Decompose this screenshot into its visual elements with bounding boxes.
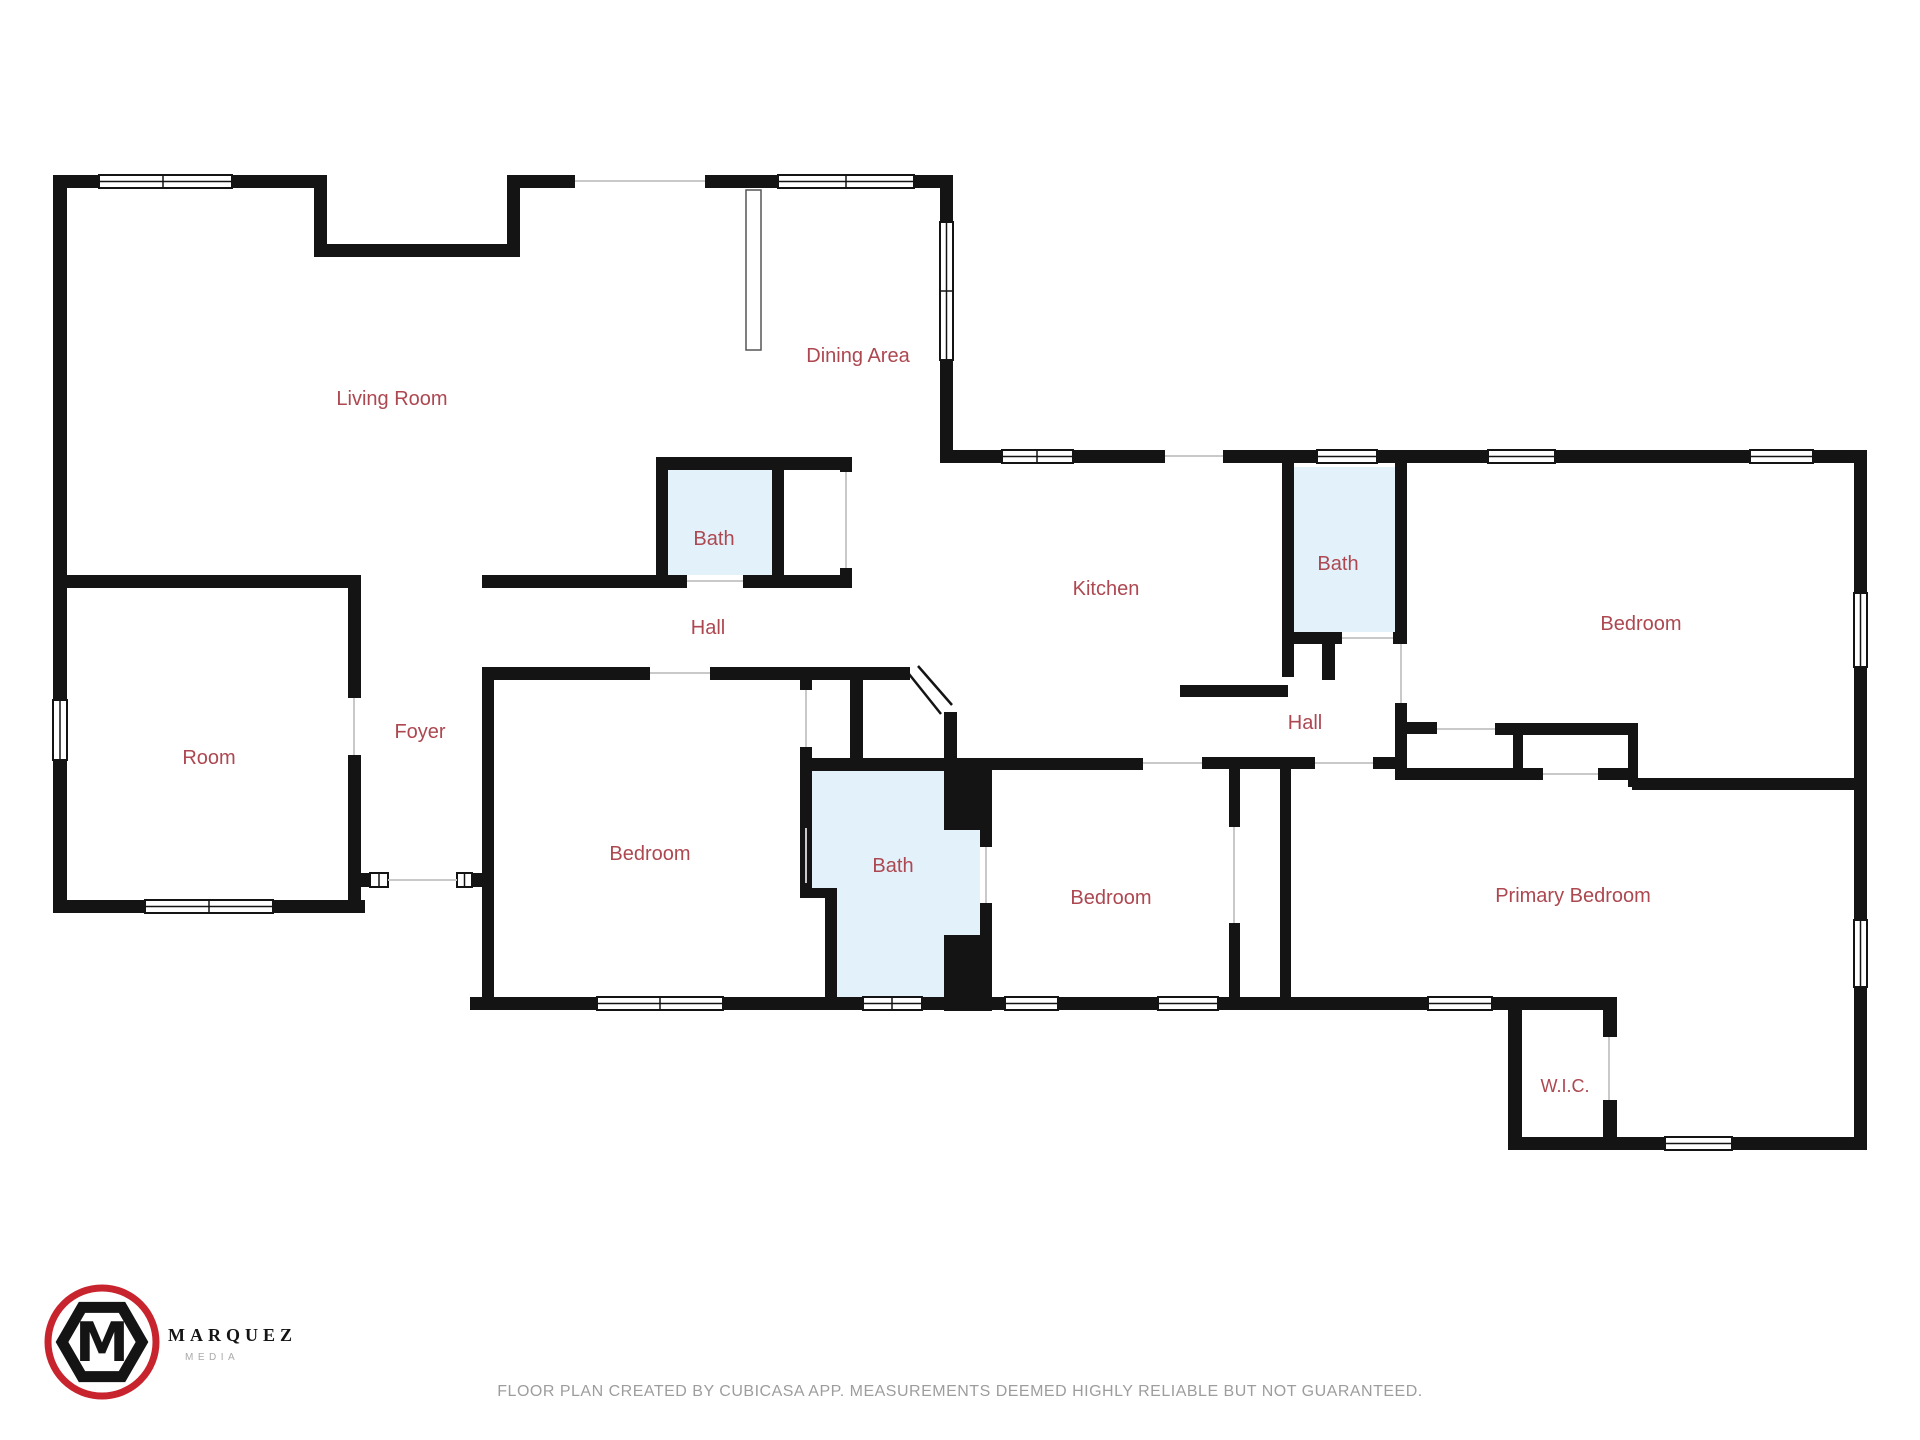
wall-segment: [1513, 735, 1523, 773]
room-label-hall-right: Hall: [1288, 712, 1322, 734]
window: [1750, 450, 1813, 463]
wall-segment: [840, 457, 852, 472]
disclaimer-text: FLOOR PLAN CREATED BY CUBICASA APP. MEAS…: [497, 1383, 1422, 1400]
wall-segment: [723, 997, 863, 1010]
room-label-wic: W.I.C.: [1541, 1076, 1590, 1096]
bath-middle-fill-right: [944, 830, 980, 935]
window: [1428, 997, 1492, 1010]
wall-segment: [800, 888, 837, 898]
wall-segment: [273, 900, 365, 913]
wall-segment: [1854, 987, 1867, 1150]
wall-segment: [482, 575, 687, 588]
window: [1665, 1137, 1732, 1150]
window: [1854, 593, 1867, 667]
window: [1002, 450, 1073, 463]
wall-segment: [361, 873, 370, 887]
wall-segment: [940, 175, 953, 222]
floor-plan-page: Living Room Dining Area Bath Hall Kitche…: [0, 0, 1920, 1440]
wall-segment: [1377, 450, 1488, 463]
wall-segment: [1282, 632, 1342, 644]
wall-segment: [850, 677, 863, 771]
wall-segment: [1632, 778, 1867, 790]
entry-sidelight: [457, 873, 472, 887]
wall-segment: [800, 758, 944, 771]
wall-segment: [940, 360, 953, 455]
wall-segment: [507, 175, 575, 188]
wall-segment: [470, 997, 597, 1010]
room-label-bath-middle: Bath: [872, 855, 913, 877]
wall-segment: [840, 568, 852, 588]
wall-segment: [348, 755, 361, 913]
wall-segment: [1218, 997, 1428, 1010]
room-label-bedroom-middle: Bedroom: [1070, 887, 1151, 909]
wall-segment: [1282, 463, 1294, 677]
wall-segment: [1400, 768, 1543, 780]
wall-segment: [944, 758, 1143, 770]
window: [99, 175, 232, 188]
wall-segment: [1732, 1137, 1867, 1150]
room-label-foyer: Foyer: [394, 721, 445, 743]
wall-segment: [1603, 997, 1617, 1037]
room-label-dining-area: Dining Area: [806, 345, 910, 367]
wall-segment: [1508, 1137, 1665, 1150]
window: [940, 222, 953, 360]
wall-segment: [1229, 923, 1240, 997]
wall-segment: [1495, 723, 1637, 735]
wall-segment: [743, 575, 852, 588]
bath-hall-fill: [668, 470, 772, 575]
window: [1005, 997, 1058, 1010]
window: [1158, 997, 1218, 1010]
wall-segment: [1603, 1100, 1617, 1137]
window: [597, 997, 723, 1010]
wall-segment: [1854, 667, 1867, 920]
wall-segment: [705, 175, 778, 188]
wall-segment: [314, 244, 520, 257]
room-label-room: Room: [182, 747, 235, 769]
wall-segment: [800, 677, 812, 690]
wall-segment: [53, 575, 361, 588]
wall-segment: [1322, 644, 1335, 680]
wall-segment: [980, 903, 992, 935]
bath-right-fill: [1294, 467, 1395, 632]
window: [53, 700, 67, 760]
bath-middle-fill-lower: [837, 888, 944, 998]
angled-door: [909, 666, 952, 714]
wall-segment: [940, 450, 1002, 463]
wall-segment: [944, 935, 992, 1011]
room-label-bath-hall: Bath: [693, 528, 734, 550]
wall-segment: [1492, 997, 1508, 1010]
window: [863, 997, 922, 1010]
window: [1317, 450, 1377, 463]
wall-segment: [53, 900, 145, 913]
wall-segment: [1854, 450, 1867, 593]
wall-segment: [1508, 1010, 1522, 1137]
wall-segment: [1555, 450, 1750, 463]
wall-segment: [825, 898, 837, 997]
wall-segment: [1180, 685, 1288, 697]
logo-brand-subtext: MEDIA: [185, 1352, 239, 1363]
wall-segment: [772, 470, 784, 575]
wall-segment: [980, 830, 992, 847]
wall-segment: [1395, 463, 1407, 644]
wall-segment: [1495, 997, 1615, 1010]
window: [1854, 920, 1867, 987]
wall-segment: [1628, 723, 1638, 787]
wall-segment: [232, 175, 320, 188]
wall-segment: [482, 667, 650, 680]
room-label-bath-right: Bath: [1317, 553, 1358, 575]
wall-segment: [1202, 757, 1315, 769]
wall-segment: [53, 175, 67, 700]
room-label-primary-bedroom: Primary Bedroom: [1495, 885, 1651, 907]
window: [778, 175, 914, 188]
logo-brand-text: MARQUEZ: [168, 1325, 297, 1345]
wall-segment: [1223, 450, 1317, 463]
logo-monogram: M: [75, 1311, 129, 1374]
room-label-living-room: Living Room: [336, 388, 447, 410]
wall-segment: [1073, 450, 1165, 463]
wall-segment: [944, 767, 992, 830]
room-label-kitchen: Kitchen: [1073, 578, 1140, 600]
wall-segment: [656, 470, 668, 575]
wall-segment: [656, 457, 852, 470]
wall-segment: [1280, 769, 1291, 997]
wall-segment: [1058, 997, 1158, 1010]
room-label-bedroom-left: Bedroom: [609, 843, 690, 865]
room-label-bedroom-right: Bedroom: [1600, 613, 1681, 635]
marquez-media-logo: M MARQUEZ MEDIA: [48, 1288, 297, 1396]
wall-segment: [1229, 769, 1240, 827]
wall-segment: [1407, 722, 1437, 734]
entry-sidelight: [370, 873, 388, 887]
wall-segment: [53, 760, 67, 911]
floor-plan-canvas: Living Room Dining Area Bath Hall Kitche…: [0, 0, 1920, 1440]
window: [145, 900, 273, 913]
window: [1488, 450, 1555, 463]
room-divider: [746, 190, 761, 350]
room-label-hall-center: Hall: [691, 617, 725, 639]
wall-segment: [482, 667, 494, 997]
wall-segment: [348, 575, 361, 698]
walls: [53, 175, 1867, 1150]
wall-segment: [472, 873, 483, 887]
